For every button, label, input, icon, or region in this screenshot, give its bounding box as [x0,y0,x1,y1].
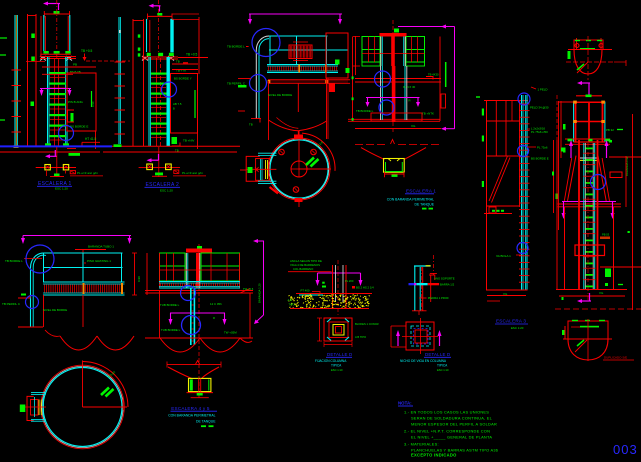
svg-text:BS 2 HS 2 1/4: BS 2 HS 2 1/4 [356,286,374,290]
svg-text:PB 03: PB 03 [602,233,610,237]
svg-text:PL 75x6: PL 75x6 [537,146,548,150]
svg-text:TB: TB [249,123,253,127]
svg-text:EXCEPTO INDICADO: EXCEPTO INDICADO [411,453,457,458]
svg-text:VA BOLA 1: VA BOLA 1 [496,254,511,258]
svg-text:DE TANQUE: DE TANQUE [415,203,435,207]
svg-text:1 PELD: 1 PELD [538,88,548,92]
svg-text:ESCALERA 4 y 5: ESCALERA 4 y 5 [171,406,210,411]
svg-text:PB 32: PB 32 [606,128,614,132]
svg-text:TIPICA: TIPICA [331,364,342,368]
svg-text:PL e=3 anc g/m: PL e=3 anc g/m [77,171,98,175]
svg-text:TB: TB [176,60,180,64]
svg-text:TIPICA: TIPICA [437,364,448,368]
svg-text:TB +0.5: TB +0.5 [186,53,197,57]
svg-text:0.90: 0.90 [137,276,141,282]
svg-text:TUB BORDE L: TUB BORDE L [161,328,181,332]
svg-text:3.- MATERIALES:: 3.- MATERIALES: [404,442,439,447]
svg-text:EL NIVEL +_____ GENERAL DE PL: EL NIVEL +_____ GENERAL DE PLANTA [411,435,492,440]
svg-text:BS BORDE E: BS BORDE E [531,157,549,161]
svg-text:ESC 1:20: ESC 1:20 [55,187,68,191]
svg-text:TW +0.5: TW +0.5 [243,287,254,291]
svg-text:TIPO: TIPO [289,303,295,307]
svg-text:1.- EN TODOS LOS CASOS LAS UNI: 1.- EN TODOS LOS CASOS LAS UNIONES [404,410,489,415]
svg-text:R: R [409,99,411,103]
svg-text:TB +NIV: TB +NIV [183,139,194,143]
svg-text:VIL: VIL [599,291,604,295]
svg-text:A B: A B [288,298,292,302]
svg-text:A B TIPO: A B TIPO [355,335,366,339]
svg-text:DETALLE D: DETALLE D [425,352,450,357]
svg-text:ESC 1:20: ESC 1:20 [160,188,173,192]
svg-text:TB PERFIL C: TB PERFIL C [2,302,21,306]
svg-text:ESCALERA 1: ESCALERA 1 [406,189,436,194]
svg-text:BARRA 1/2: BARRA 1/2 [440,283,455,287]
svg-text:NIVEL DE BORDE: NIVEL DE BORDE [268,93,292,97]
svg-text:SERAN DE SOLDADURA CONTINUA, E: SERAN DE SOLDADURA CONTINUA, EL [411,416,493,421]
svg-text:DE TANQUE: DE TANQUE [196,420,216,424]
svg-text:HT 41.5: HT 41.5 [85,137,97,141]
svg-text:ESC 1:10: ESC 1:10 [331,368,343,372]
svg-text:TB BORDE L: TB BORDE L [356,109,374,113]
svg-text:CON BARANDA PERIMETRAL: CON BARANDA PERIMETRAL [387,197,434,201]
svg-text:ESC 1:10: ESC 1:10 [437,368,449,372]
svg-text:BS BORDE Y: BS BORDE Y [174,77,192,81]
svg-text:PB: PB [73,63,77,67]
svg-text:NOTA:: NOTA: [398,401,412,406]
svg-text:PL 4 X 30: PL 4 X 30 [403,85,416,89]
svg-text:DUPLICADO S/E: DUPLICADO S/E [604,356,627,360]
svg-text:TB BORDE L: TB BORDE L [227,45,245,49]
svg-text:TUB BORDE L: TUB BORDE L [160,303,180,307]
svg-text:VIL: VIL [503,292,508,296]
svg-text:R: R [213,316,215,320]
svg-text:PIEDRA 1 PROF: PIEDRA 1 PROF [428,296,449,300]
svg-text:TW +05M: TW +05M [224,331,237,335]
svg-text:PELD 34 @30: PELD 34 @30 [530,106,549,110]
svg-text:DETALLE D: DETALLE D [327,352,352,357]
svg-text:BS BORDE E: BS BORDE E [70,125,88,129]
svg-text:NICHO DE VIGA EN COLUMNA: NICHO DE VIGA EN COLUMNA [400,359,447,363]
svg-text:003: 003 [613,442,638,457]
svg-text:TB PERFIL C: TB PERFIL C [227,82,246,86]
svg-text:ESC 1:20: ESC 1:20 [511,326,524,330]
svg-text:BLOKES 1 CONCR: BLOKES 1 CONCR [355,322,379,326]
svg-text:TB +NTK: TB +NTK [422,112,434,116]
svg-text:12 C 05h: 12 C 05h [210,302,222,306]
svg-text:TB BORDE L: TB BORDE L [5,259,23,263]
svg-text:BARANDA 1.20: BARANDA 1.20 [258,283,262,303]
svg-text:PL 200: PL 200 [345,279,354,283]
svg-text:COL BARRENO: COL BARRENO [293,267,314,271]
svg-text:MENOR ESPESOR DEL PERFIL A SOL: MENOR ESPESOR DEL PERFIL A SOLDAR [411,422,497,427]
svg-text:PL 75x6 c/50: PL 75x6 c/50 [531,130,548,134]
svg-text:B: B [173,107,175,111]
svg-text:PL e=3 anc g/m: PL e=3 anc g/m [182,171,203,175]
svg-text:TB 4X30: TB 4X30 [428,73,439,77]
svg-text:0.90: 0.90 [91,101,95,107]
svg-text:AB 7.5: AB 7.5 [173,102,182,106]
svg-text:BARANDA TUBO 1: BARANDA TUBO 1 [88,245,114,249]
svg-text:TB +0.5: TB +0.5 [81,49,92,53]
svg-text:PISO GRATING 1: PISO GRATING 1 [87,259,111,263]
svg-text:ESCALERA 3: ESCALERA 3 [496,319,526,324]
svg-text:NIVEL DE BORDE: NIVEL DE BORDE [43,308,67,312]
svg-text:TB: TB [175,148,179,152]
svg-text:PIS B ANG: PIS B ANG [68,100,84,104]
svg-text:ANG SOPORTE: ANG SOPORTE [434,277,455,281]
svg-text:2.- EL NIVEL +N.P.T. CORRESPON: 2.- EL NIVEL +N.P.T. CORRESPONDE CON [404,429,490,434]
svg-text:CON BARANDA PERIMETRAL: CON BARANDA PERIMETRAL [168,414,215,418]
svg-text:FIJACION COLUMNA: FIJACION COLUMNA [315,359,347,363]
svg-text:VIL: VIL [411,124,416,128]
svg-text:PT 400: PT 400 [301,288,310,292]
